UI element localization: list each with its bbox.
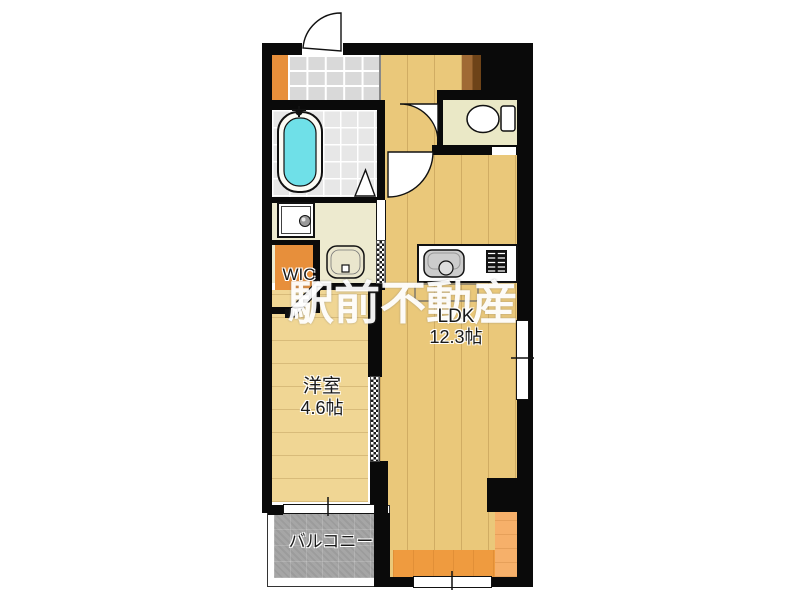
bathtub-water [284,118,316,186]
drain-icon [300,216,311,227]
stove-icon [486,250,507,273]
label-ldk-area: 12.3帖 [396,328,516,348]
entrance-swing-door-icon [303,13,341,51]
toilet-swing-door-icon [400,104,438,142]
toilet-icon [467,106,499,133]
ldk-swing-door-icon [388,152,433,197]
vanity-basin-icon [327,246,364,278]
label-ldk-name: LDK [396,307,516,328]
label-wic: WIC [277,266,321,285]
drain-highlight [302,218,306,222]
label-balcony: バルコニー [271,533,391,552]
vanity-drain [342,265,349,272]
label-western-room-name: 洋室 [262,377,382,398]
toilet-tank [501,106,515,131]
kitchen-sink-drain [439,261,453,275]
folding-door-triangle-icon [355,170,375,196]
floorplan-page: 駅前不動産 WIC 洋室 4.6帖 LDK 12.3帖 バルコニー [0,0,800,600]
label-western-room-area: 4.6帖 [262,399,382,419]
